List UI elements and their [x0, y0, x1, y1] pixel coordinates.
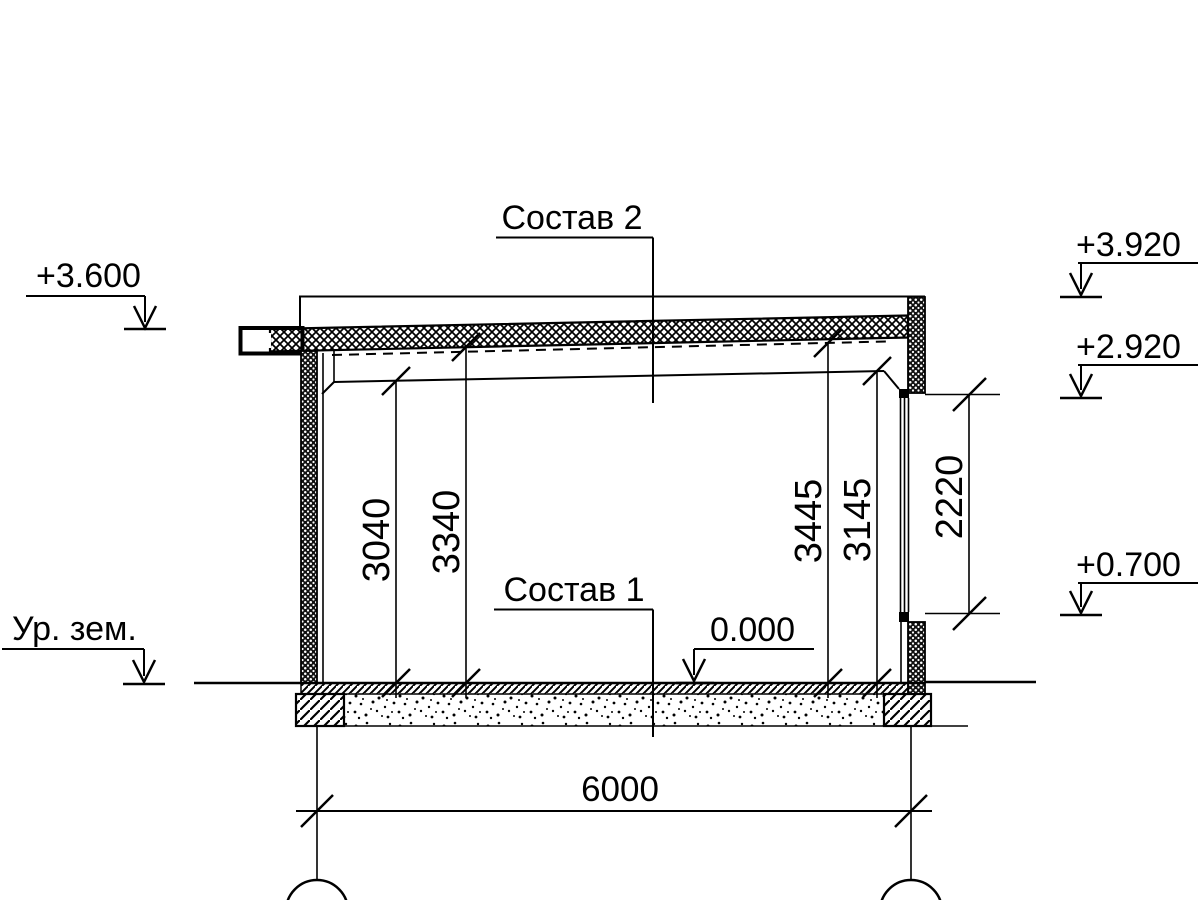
left-wall	[301, 351, 317, 683]
roof-insulation-slab	[270, 316, 908, 352]
elevation-window-sill: +0.700	[1060, 546, 1198, 615]
dim-value: 3340	[426, 490, 468, 575]
elevation-value: +3.920	[1076, 226, 1181, 264]
foundation-left	[296, 694, 344, 726]
window	[899, 389, 909, 622]
dim-ceiling-height-right: 3145	[837, 357, 891, 698]
dim-roof-underside-right: 3445	[788, 329, 842, 698]
elevation-floor: 0.000	[676, 611, 814, 683]
dim-roof-underside-left: 3340	[426, 333, 480, 698]
roof-assembly-label: Состав 2	[502, 199, 643, 237]
dim-value: 2220	[929, 455, 971, 540]
right-wall-parapet	[908, 297, 925, 393]
section-drawing: 6000 3040 3340 3445 3145 2220 Состав 2	[0, 0, 1200, 900]
ceiling	[322, 351, 899, 394]
dim-span-value: 6000	[581, 770, 659, 809]
dim-window-height: 2220	[925, 378, 1000, 630]
dim-value: 3445	[788, 479, 830, 564]
roof	[241, 297, 926, 356]
ground-level-mark: Ур. зем.	[2, 610, 165, 684]
ground-level-label: Ур. зем.	[12, 610, 137, 648]
bedding-layer	[318, 694, 884, 726]
elevation-value: 0.000	[710, 611, 795, 649]
floor-assembly-label: Состав 1	[504, 571, 645, 609]
dim-value: 3040	[356, 498, 398, 583]
eaves-box-cavity	[245, 333, 271, 348]
elevation-value: +0.700	[1076, 546, 1181, 584]
axis-circle-right	[880, 880, 942, 900]
window-sill-block	[899, 612, 909, 622]
elevation-parapet-top: +3.920	[1060, 226, 1198, 297]
elevation-value: +3.600	[36, 257, 141, 295]
axis-circle-left	[286, 880, 348, 900]
ceiling-line	[334, 371, 884, 382]
dim-ceiling-height-left: 3040	[356, 367, 410, 698]
elevation-value: +2.920	[1076, 328, 1181, 366]
ceiling-chamfer-right	[884, 371, 899, 389]
window-head-block	[899, 389, 909, 398]
section-drawing-sheet: 6000 3040 3340 3445 3145 2220 Состав 2	[0, 0, 1200, 900]
dim-span: 6000	[296, 770, 932, 827]
elevation-window-head: +2.920	[1060, 328, 1198, 398]
elevation-roof-edge: +3.600	[26, 257, 166, 329]
walls	[301, 297, 925, 694]
dim-value: 3145	[837, 478, 879, 563]
axes	[286, 726, 942, 900]
foundation-right	[884, 694, 931, 726]
roof-assembly-callout: Состав 2	[496, 199, 653, 403]
